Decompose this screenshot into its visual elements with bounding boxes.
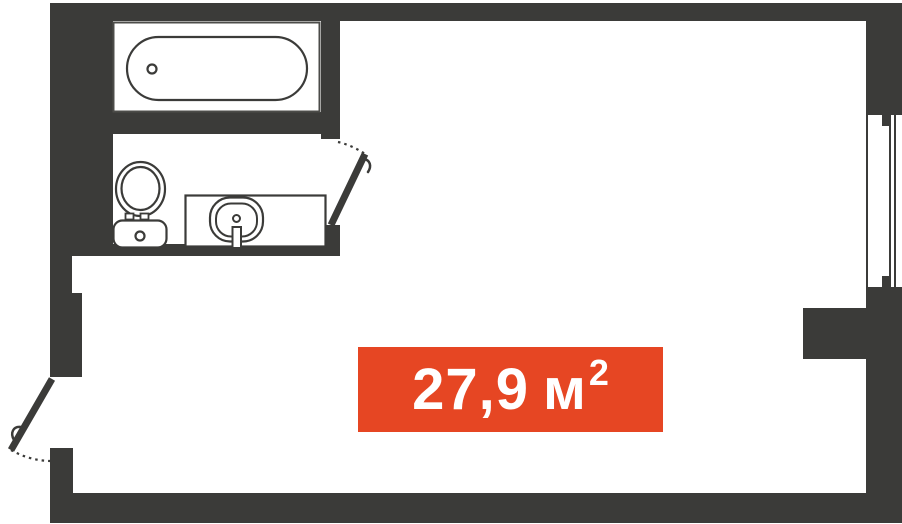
area-badge: 27,9 м 2 xyxy=(358,347,663,432)
floor-plan: 27,9 м 2 xyxy=(0,0,902,524)
area-unit-exponent: 2 xyxy=(589,355,609,391)
window-glazing-line-2 xyxy=(894,115,896,287)
window-inner-face-line xyxy=(866,115,868,287)
wall-top xyxy=(50,3,902,21)
bathroom-door xyxy=(331,142,370,225)
window-icon xyxy=(866,115,896,287)
wall-bottom xyxy=(50,493,902,523)
window-sash-stub-top xyxy=(882,115,889,126)
window-sash-stub-bottom xyxy=(882,276,889,287)
wall-left-lower xyxy=(50,448,73,495)
area-value: 27,9 xyxy=(412,361,529,419)
wall-entrance-pier xyxy=(50,293,82,377)
wall-left-bathroom-shaft xyxy=(50,3,113,256)
toilet-seat-outer xyxy=(116,162,165,216)
entrance-door-swing-arc xyxy=(11,450,50,461)
bathroom-door-leaf xyxy=(331,154,365,225)
wall-bathroom-right-upper xyxy=(321,21,340,139)
sink-icon xyxy=(186,196,326,249)
bathtub-icon xyxy=(114,23,320,112)
area-unit: м xyxy=(543,361,586,419)
entrance-door xyxy=(11,379,52,461)
toilet-tank xyxy=(114,221,167,248)
entrance-door-leaf xyxy=(11,379,52,450)
wall-right-pier xyxy=(803,308,866,359)
sink-tap xyxy=(233,227,242,248)
wall-right-lower xyxy=(866,287,902,493)
floorplan-svg xyxy=(0,0,902,524)
toilet-icon xyxy=(114,162,167,248)
toilet-hinge-right xyxy=(141,214,149,220)
bathroom-door-swing-arc xyxy=(338,142,365,154)
window-glazing-line-1 xyxy=(889,115,891,287)
wall-bathroom-divider xyxy=(113,112,340,134)
wall-right-upper xyxy=(866,21,902,115)
toilet-hinge-left xyxy=(126,214,134,220)
